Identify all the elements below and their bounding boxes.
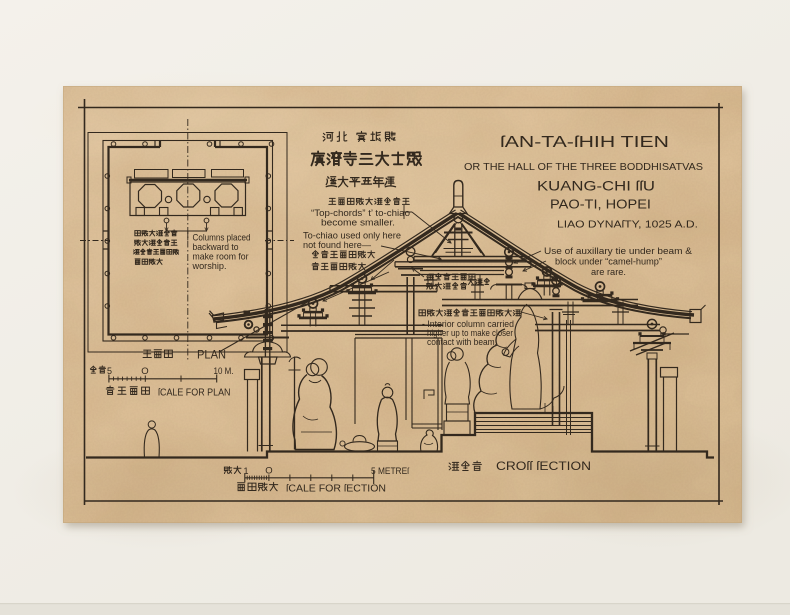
svg-text:ſAN-TA-ſHIH TIEN: ſAN-TA-ſHIH TIEN xyxy=(500,134,669,151)
svg-text:PAO-TI, HOPEI: PAO-TI, HOPEI xyxy=(550,197,651,212)
svg-text:5 METREſ: 5 METREſ xyxy=(371,466,410,476)
svg-text:OR THE HALL OF THE THREE BODD: OR THE HALL OF THE THREE BODDHISATVAS xyxy=(464,162,703,173)
svg-text:“Top-chords” t’ to-chiao: “Top-chords” t’ to-chiao xyxy=(311,208,410,218)
svg-text:block under “camel-hump”: block under “camel-hump” xyxy=(555,257,662,267)
svg-text:ſCALE FOR PLAN: ſCALE FOR PLAN xyxy=(158,388,231,399)
svg-text:KUANG-CHI ſſU: KUANG-CHI ſſU xyxy=(537,178,655,194)
svg-text:Use of auxillary tie under bea: Use of auxillary tie under beam & xyxy=(544,246,692,256)
svg-text:not found here—: not found here— xyxy=(303,240,371,250)
svg-text:backward to: backward to xyxy=(193,242,239,252)
svg-text:CROſſ ſECTION: CROſſ ſECTION xyxy=(496,459,591,473)
svg-text:LIAO DYNAſTY, 1025 A.D.: LIAO DYNAſTY, 1025 A.D. xyxy=(557,220,698,231)
svg-text:5: 5 xyxy=(107,366,112,376)
svg-text:ſCALE FOR ſECTION: ſCALE FOR ſECTION xyxy=(286,484,386,495)
svg-text:Columns placed: Columns placed xyxy=(193,233,251,243)
svg-text:To-chiao used only here: To-chiao used only here xyxy=(303,231,401,241)
svg-text:are rare.: are rare. xyxy=(591,267,626,277)
svg-text:become smaller.: become smaller. xyxy=(321,218,395,228)
svg-text:PLAN: PLAN xyxy=(197,350,226,362)
svg-text:worship.: worship. xyxy=(192,261,227,271)
svg-text:make room for: make room for xyxy=(193,252,249,262)
svg-text:O: O xyxy=(141,366,148,377)
